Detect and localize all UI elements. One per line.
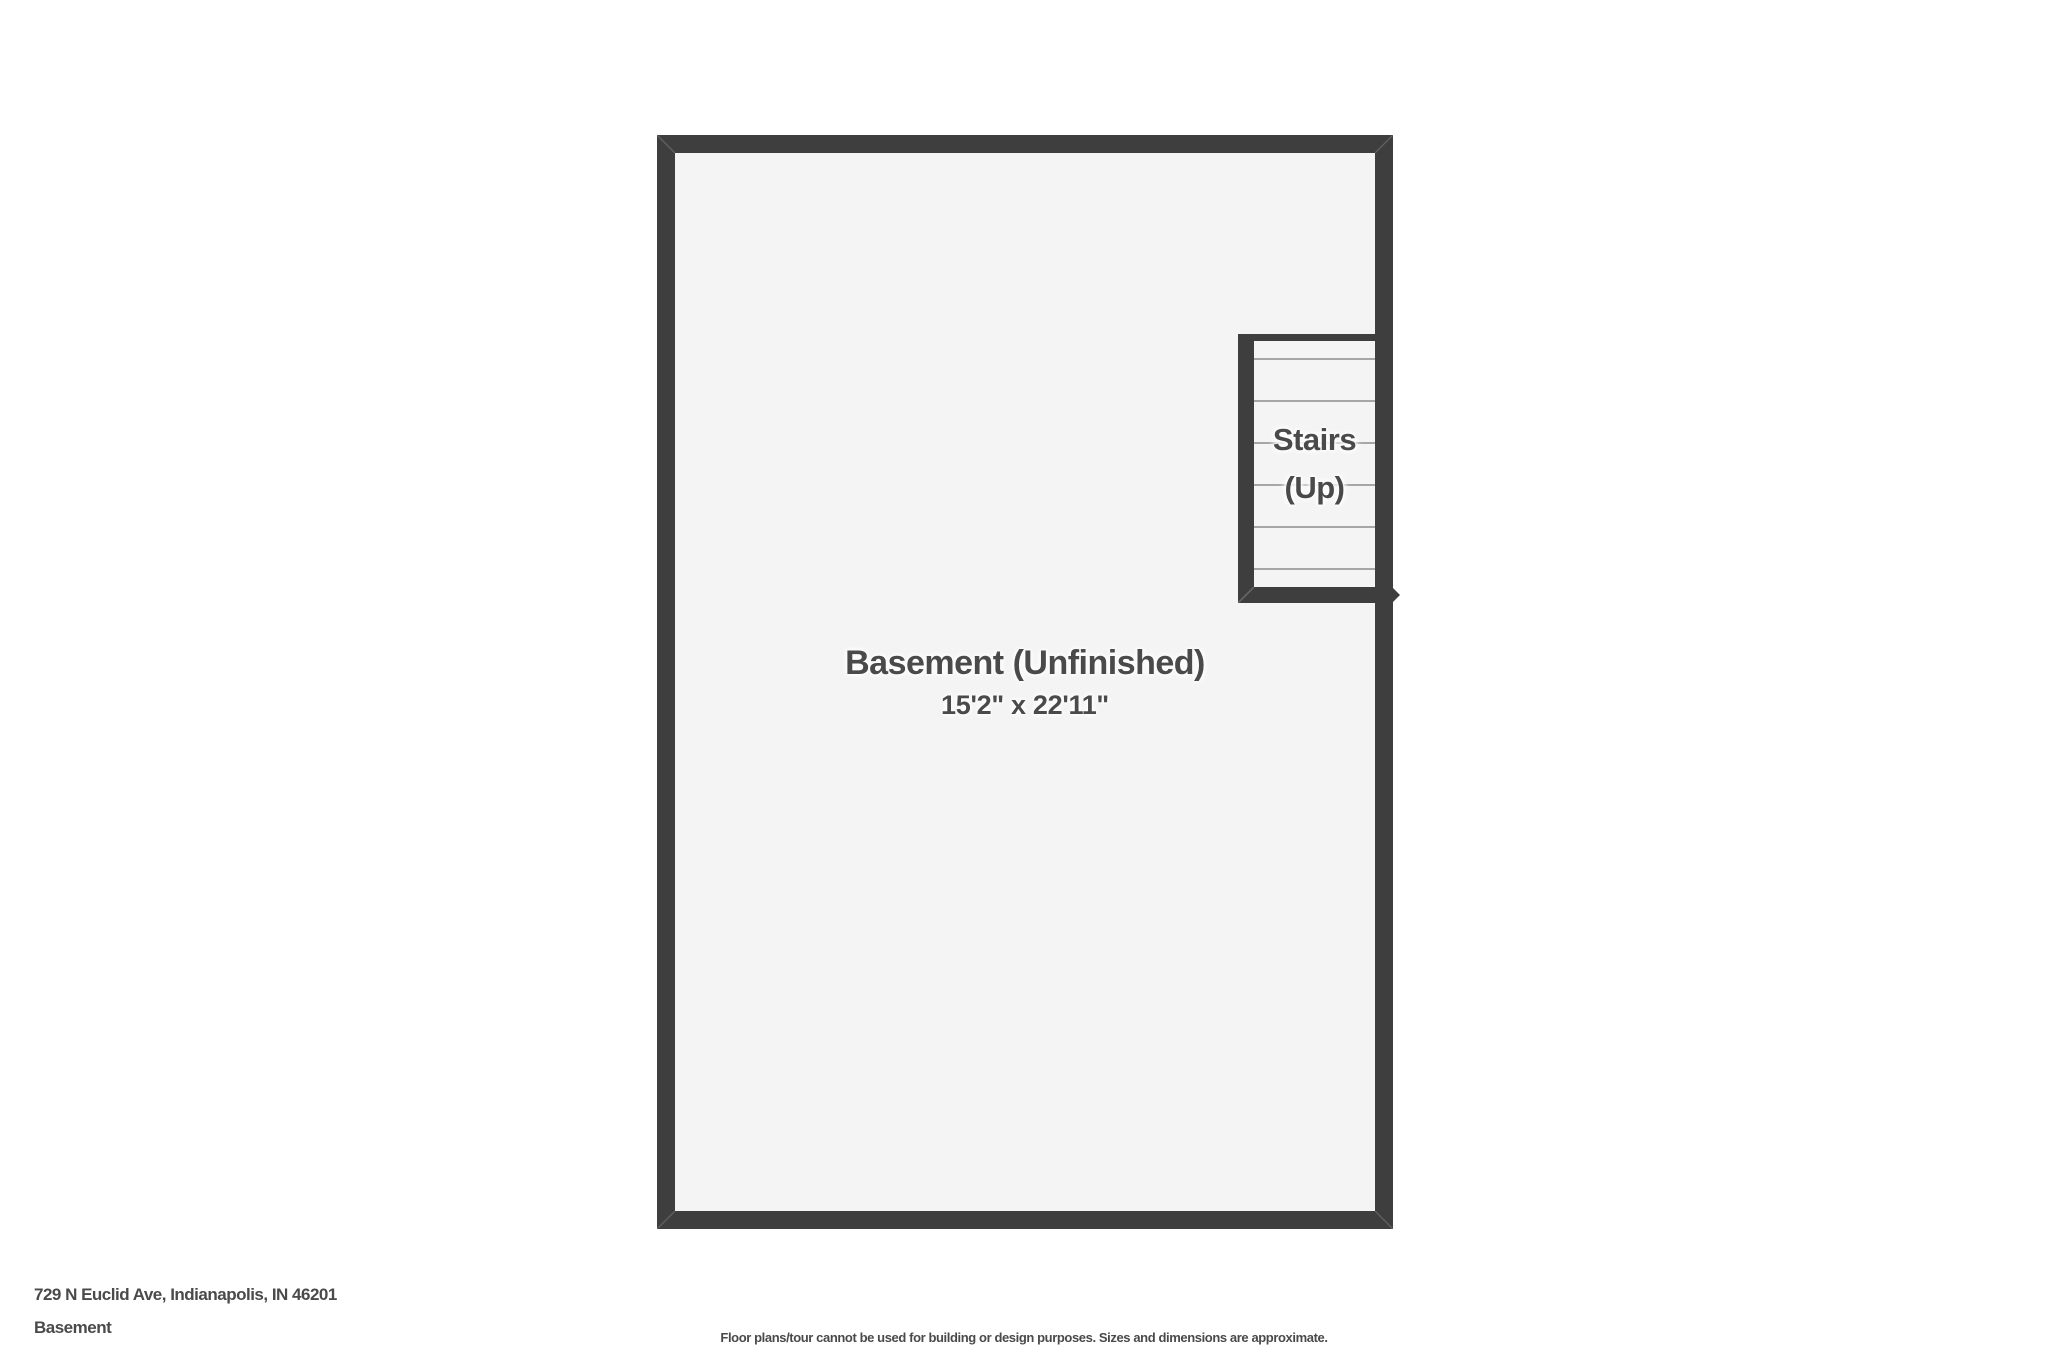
wall-miter-seam-bottom-right [1375, 1211, 1393, 1229]
stairs-label-line1: Stairs [1273, 422, 1356, 457]
stairs-wall-miter-seam [1238, 587, 1254, 603]
stairs-enclosure: Stairs (Up) [1238, 334, 1375, 603]
stair-tread-line [1254, 526, 1375, 528]
property-address: 729 N Euclid Ave, Indianapolis, IN 46201 [34, 1284, 337, 1306]
room-label: Basement (Unfinished) 15'2" x 22'11" [657, 643, 1393, 721]
stairs-wall-miter-diamond [1390, 585, 1400, 605]
stair-tread-line [1254, 400, 1375, 402]
stair-tread-line [1254, 358, 1375, 360]
room-dimensions: 15'2" x 22'11" [657, 689, 1393, 721]
wall-miter-seam-top-right [1375, 135, 1393, 153]
stair-tread-line [1254, 568, 1375, 570]
wall-miter-seam-top-left [657, 135, 675, 153]
disclaimer-text: Floor plans/tour cannot be used for buil… [0, 1329, 2048, 1347]
stairs-label-line2: (Up) [1285, 470, 1345, 505]
room-name: Basement (Unfinished) [657, 643, 1393, 683]
floor-plan-page: Basement (Unfinished) 15'2" x 22'11" Sta… [0, 0, 2048, 1365]
wall-miter-seam-bottom-left [657, 1211, 675, 1229]
stairs-label: Stairs (Up) [1254, 416, 1375, 512]
stair-treads: Stairs (Up) [1254, 341, 1375, 587]
